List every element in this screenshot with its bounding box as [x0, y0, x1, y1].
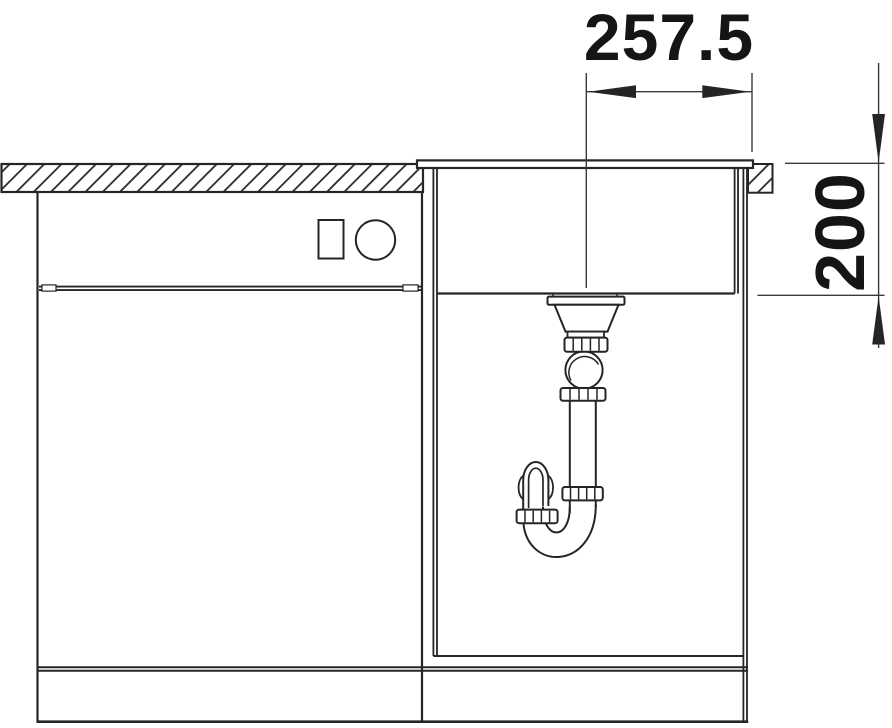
drain-assembly	[517, 295, 625, 558]
depth-dimension-label: 200	[801, 172, 879, 292]
front-panel-knob-circle	[356, 220, 395, 259]
strainer-flange	[548, 297, 625, 305]
union-nut-top	[565, 338, 608, 352]
cap-inner-wall	[529, 468, 543, 508]
sink-installation-drawing: 257.5 200	[0, 0, 892, 728]
arrowhead-up	[872, 296, 885, 345]
drawer-hinge-left	[42, 285, 56, 291]
nut-body	[561, 388, 606, 401]
nut-body	[565, 338, 608, 352]
union-nut-on-cap	[517, 510, 558, 524]
countertop-left-section	[2, 164, 424, 192]
drawer-hinge-right	[403, 285, 418, 291]
sink-base-cabinet	[433, 168, 747, 722]
left-base-cabinet	[38, 192, 423, 722]
width-dimension: 257.5	[584, 0, 754, 288]
width-dimension-label: 257.5	[584, 0, 754, 74]
union-nut-on-tailpipe	[562, 487, 602, 500]
arrowhead-right	[702, 85, 750, 98]
drawing-canvas: 257.5 200	[0, 0, 892, 728]
front-panel-rectangle-detail	[319, 220, 344, 259]
nut-body	[517, 510, 558, 524]
nut-body	[562, 487, 602, 500]
sink-rim	[417, 160, 753, 168]
cabinet-linework	[37, 168, 749, 722]
arrowhead-down	[872, 114, 885, 163]
arrowhead-left	[588, 85, 636, 98]
strainer-cup	[555, 305, 619, 332]
depth-dimension: 200	[758, 63, 886, 348]
strainer	[548, 295, 625, 338]
union-nut-under-ball	[561, 388, 606, 401]
countertop	[2, 160, 773, 192]
plinth	[37, 667, 749, 721]
